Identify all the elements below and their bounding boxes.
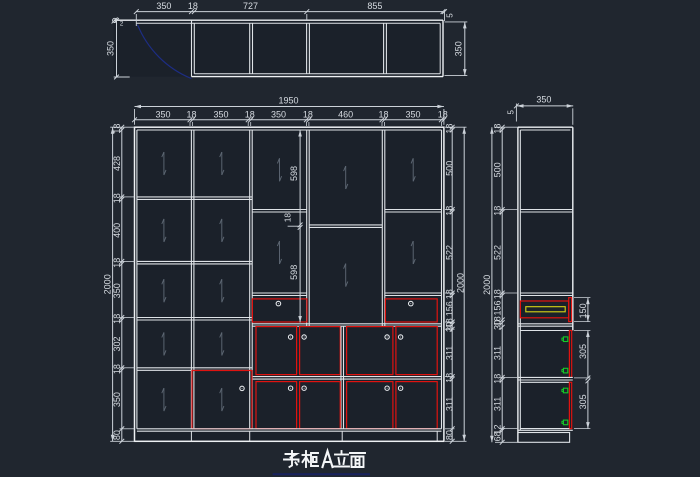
svg-text:18: 18 (492, 289, 502, 299)
svg-text:18: 18 (245, 109, 255, 119)
svg-text:727: 727 (243, 1, 258, 11)
svg-text:30: 30 (445, 322, 455, 332)
svg-text:428: 428 (112, 156, 122, 171)
svg-text:855: 855 (367, 1, 382, 11)
svg-text:156: 156 (492, 300, 502, 315)
svg-text:350: 350 (536, 94, 551, 104)
svg-text:598: 598 (289, 166, 299, 181)
svg-text:2: 2 (120, 21, 124, 28)
svg-text:68: 68 (492, 431, 502, 441)
svg-text:350: 350 (155, 109, 170, 119)
svg-text:18: 18 (188, 1, 198, 11)
svg-text:18: 18 (112, 193, 122, 203)
svg-text:2000: 2000 (482, 275, 492, 295)
svg-text:522: 522 (492, 245, 502, 260)
svg-text:18: 18 (492, 206, 502, 216)
svg-text:311: 311 (445, 397, 455, 411)
svg-text:350: 350 (106, 41, 116, 56)
svg-text:18: 18 (445, 124, 455, 134)
svg-text:18: 18 (438, 109, 448, 119)
svg-text:460: 460 (338, 109, 353, 119)
svg-text:302: 302 (112, 336, 122, 351)
svg-text:156: 156 (445, 301, 455, 316)
svg-text:305: 305 (578, 344, 588, 359)
svg-text:305: 305 (578, 394, 588, 409)
svg-text:18: 18 (445, 373, 455, 383)
svg-text:18: 18 (445, 206, 455, 216)
svg-text:18: 18 (112, 314, 122, 324)
svg-text:350: 350 (112, 392, 122, 407)
svg-text:350: 350 (271, 109, 286, 119)
svg-text:18: 18 (283, 213, 293, 223)
svg-text:1950: 1950 (278, 96, 298, 106)
svg-text:5: 5 (445, 13, 454, 18)
svg-text:522: 522 (445, 245, 455, 260)
svg-text:18: 18 (492, 374, 502, 384)
svg-text:500: 500 (445, 161, 455, 176)
svg-text:18: 18 (303, 109, 313, 119)
svg-text:500: 500 (492, 162, 502, 177)
svg-text:18: 18 (112, 258, 122, 268)
svg-text:80: 80 (445, 430, 455, 440)
svg-text:350: 350 (112, 283, 122, 298)
svg-text:350: 350 (213, 109, 228, 119)
svg-text:18: 18 (186, 109, 196, 119)
svg-text:2000: 2000 (102, 274, 112, 294)
svg-text:350: 350 (454, 41, 464, 56)
svg-text:18: 18 (112, 364, 122, 374)
svg-text:311: 311 (492, 346, 502, 360)
svg-text:18: 18 (445, 289, 455, 299)
svg-text:400: 400 (112, 223, 122, 238)
svg-text:150: 150 (578, 303, 588, 318)
svg-text:311: 311 (492, 397, 502, 411)
svg-text:30: 30 (492, 320, 502, 330)
svg-text:598: 598 (289, 265, 299, 280)
svg-text:5: 5 (507, 109, 516, 114)
svg-text:350: 350 (156, 1, 171, 11)
svg-text:18: 18 (378, 109, 388, 119)
svg-text:18: 18 (492, 124, 502, 134)
svg-text:311: 311 (445, 346, 455, 360)
svg-text:2000: 2000 (455, 273, 465, 293)
svg-text:350: 350 (405, 109, 420, 119)
